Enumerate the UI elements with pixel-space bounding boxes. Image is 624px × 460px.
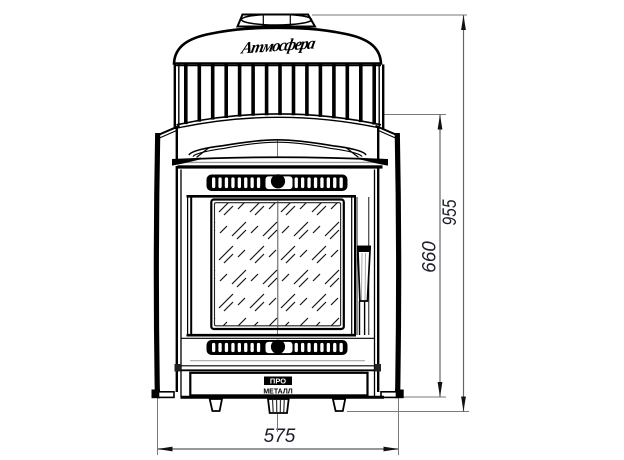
svg-text:660: 660 xyxy=(420,241,441,273)
svg-text:955: 955 xyxy=(440,199,461,225)
svg-text:575: 575 xyxy=(264,426,296,447)
svg-text:ПРО: ПРО xyxy=(270,377,286,386)
svg-text:МЕТАЛЛ: МЕТАЛЛ xyxy=(263,389,292,396)
